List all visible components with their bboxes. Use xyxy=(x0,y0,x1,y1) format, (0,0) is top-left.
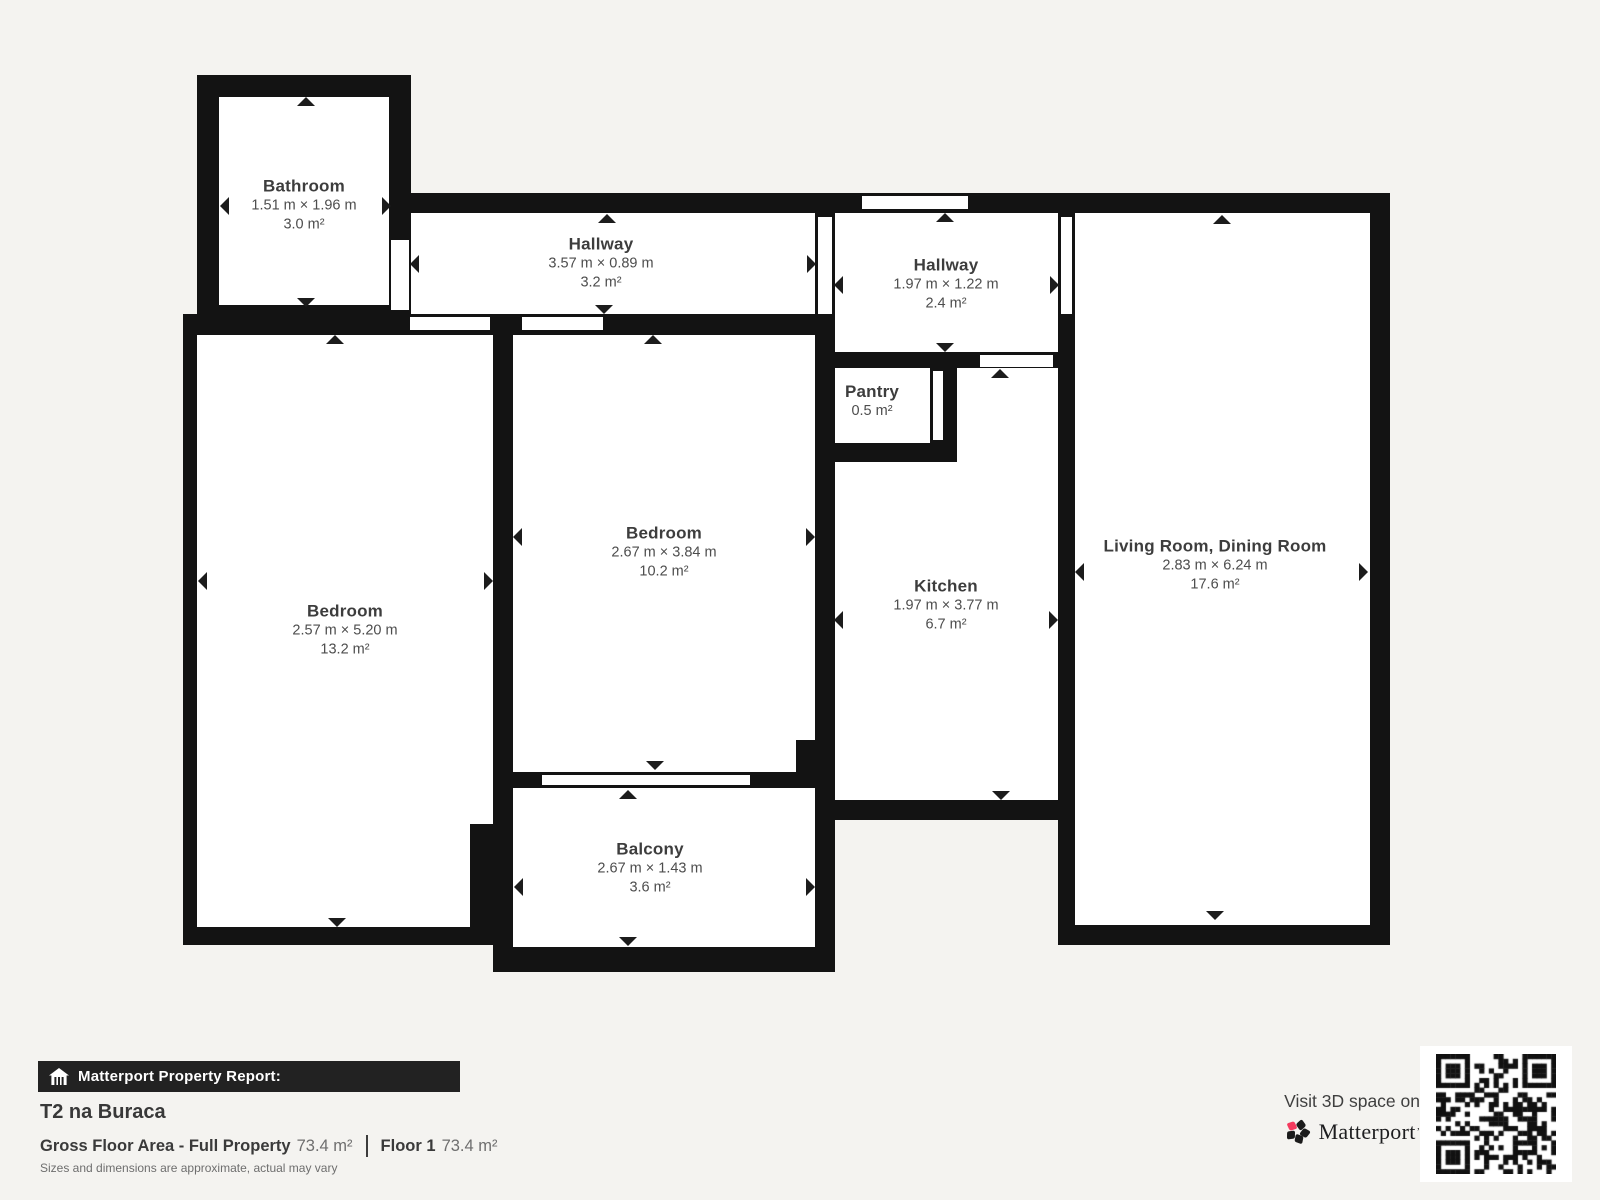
report-bar: Matterport Property Report: xyxy=(38,1061,460,1092)
room-area: 3.0 m² xyxy=(251,216,356,235)
room-area: 10.2 m² xyxy=(611,563,716,582)
room-name: Hallway xyxy=(893,255,998,276)
room-name: Living Room, Dining Room xyxy=(1104,536,1327,557)
wall-segment xyxy=(493,947,835,972)
dimension-arrow-down xyxy=(619,937,637,946)
matterport-wordmark: Matterport xyxy=(1319,1119,1416,1145)
room-name: Pantry xyxy=(845,381,899,402)
floor-value: 73.4 m² xyxy=(442,1137,498,1156)
floor-label: Floor 1 xyxy=(381,1137,436,1156)
matterport-pinwheel-icon xyxy=(1285,1119,1311,1145)
dimension-arrow-up xyxy=(598,214,616,223)
floor-plan: Bathroom 1.51 m × 1.96 m 3.0 m² Hallway … xyxy=(0,0,1600,1200)
dimension-arrow-right xyxy=(1050,276,1059,294)
room-dimensions: 3.57 m × 0.89 m xyxy=(548,255,653,274)
dimension-arrow-down xyxy=(936,343,954,352)
dimension-arrow-down xyxy=(595,305,613,314)
window-opening xyxy=(862,196,968,209)
room-name: Balcony xyxy=(597,839,702,860)
matterport-promo: Visit 3D space on Matterport’ xyxy=(1240,1091,1420,1145)
room-name: Bedroom xyxy=(611,523,716,544)
door-opening xyxy=(522,317,603,330)
door-opening xyxy=(933,371,943,440)
wall-segment xyxy=(815,443,957,462)
room-label-hallway-top: Hallway 3.57 m × 0.89 m 3.2 m² xyxy=(548,234,653,293)
room-name: Bathroom xyxy=(251,176,356,197)
property-name: T2 na Buraca xyxy=(40,1101,166,1124)
room-area: 3.6 m² xyxy=(597,879,702,898)
door-opening xyxy=(410,317,490,330)
wall-segment xyxy=(796,740,815,772)
dimension-arrow-left xyxy=(834,611,843,629)
room-dimensions: 2.67 m × 3.84 m xyxy=(611,544,716,563)
house-icon xyxy=(49,1068,69,1085)
qr-code xyxy=(1420,1046,1572,1182)
dimension-arrow-left xyxy=(198,572,207,590)
door-opening xyxy=(391,240,409,310)
room-label-bedroom-middle: Bedroom 2.67 m × 3.84 m 10.2 m² xyxy=(611,523,716,582)
wall-segment xyxy=(197,75,411,97)
dimension-arrow-left xyxy=(1075,563,1084,581)
dimension-arrow-right xyxy=(1049,611,1058,629)
dimension-arrow-left xyxy=(514,878,523,896)
room-area: 2.4 m² xyxy=(893,295,998,314)
dimension-arrow-down xyxy=(992,791,1010,800)
room-label-living-room: Living Room, Dining Room 2.83 m × 6.24 m… xyxy=(1104,536,1327,595)
door-opening xyxy=(818,217,832,314)
wall-segment xyxy=(183,314,197,945)
room-label-kitchen: Kitchen 1.97 m × 3.77 m 6.7 m² xyxy=(893,576,998,635)
dimension-arrow-up xyxy=(619,790,637,799)
dimension-arrow-right xyxy=(806,528,815,546)
separator-line xyxy=(366,1135,368,1157)
gfa-value: 73.4 m² xyxy=(297,1137,353,1156)
dimension-arrow-right xyxy=(807,255,816,273)
wall-segment xyxy=(815,800,1058,820)
gfa-label: Gross Floor Area - Full Property xyxy=(40,1137,291,1156)
wall-segment xyxy=(183,927,488,945)
room-dimensions: 1.97 m × 3.77 m xyxy=(893,597,998,616)
room-label-bedroom-left: Bedroom 2.57 m × 5.20 m 13.2 m² xyxy=(292,601,397,660)
room-area: 3.2 m² xyxy=(548,274,653,293)
dimension-arrow-down xyxy=(1206,911,1224,920)
room-dimensions: 2.57 m × 5.20 m xyxy=(292,622,397,641)
dimension-arrow-left xyxy=(834,276,843,294)
wall-segment xyxy=(470,824,493,945)
dimension-arrow-left xyxy=(220,197,229,215)
matterport-brand: Matterport’ xyxy=(1285,1119,1420,1145)
floor-area-summary: Gross Floor Area - Full Property 73.4 m²… xyxy=(40,1135,498,1157)
wall-segment xyxy=(1058,925,1390,945)
window-opening xyxy=(542,775,750,785)
room-area: 0.5 m² xyxy=(845,402,899,421)
wall-segment xyxy=(197,75,219,315)
dimension-arrow-right xyxy=(382,197,391,215)
dimension-arrow-up xyxy=(297,97,315,106)
room-name: Kitchen xyxy=(893,576,998,597)
window-opening xyxy=(980,355,1053,367)
room-label-balcony: Balcony 2.67 m × 1.43 m 3.6 m² xyxy=(597,839,702,898)
dimension-arrow-right xyxy=(806,878,815,896)
dimension-arrow-down xyxy=(328,918,346,927)
door-opening xyxy=(1061,217,1072,314)
dimension-arrow-up xyxy=(326,335,344,344)
qr-code-icon xyxy=(1436,1054,1556,1174)
dimension-arrow-up xyxy=(644,335,662,344)
room-label-hallway-small: Hallway 1.97 m × 1.22 m 2.4 m² xyxy=(893,255,998,314)
dimension-arrow-down xyxy=(646,761,664,770)
room-dimensions: 1.51 m × 1.96 m xyxy=(251,197,356,216)
dimension-arrow-right xyxy=(484,572,493,590)
room-name: Hallway xyxy=(548,234,653,255)
room-label-bathroom: Bathroom 1.51 m × 1.96 m 3.0 m² xyxy=(251,176,356,235)
room-label-pantry: Pantry 0.5 m² xyxy=(845,381,899,421)
room-name: Bedroom xyxy=(292,601,397,622)
dimension-arrow-left xyxy=(513,528,522,546)
room-dimensions: 2.67 m × 1.43 m xyxy=(597,860,702,879)
dimension-arrow-up xyxy=(991,369,1009,378)
dimension-arrow-up xyxy=(936,213,954,222)
room-dimensions: 2.83 m × 6.24 m xyxy=(1104,557,1327,576)
visit-3d-text: Visit 3D space on xyxy=(1284,1091,1420,1112)
report-bar-label: Matterport Property Report: xyxy=(78,1068,281,1085)
wall-segment xyxy=(1370,193,1390,945)
dimension-arrow-up xyxy=(1213,215,1231,224)
dimension-arrow-left xyxy=(410,255,419,273)
room-area: 13.2 m² xyxy=(292,641,397,660)
disclaimer-text: Sizes and dimensions are approximate, ac… xyxy=(40,1161,337,1175)
wall-segment xyxy=(493,314,513,972)
dimension-arrow-down xyxy=(297,298,315,307)
room-dimensions: 1.97 m × 1.22 m xyxy=(893,276,998,295)
dimension-arrow-right xyxy=(1359,563,1368,581)
room-area: 17.6 m² xyxy=(1104,576,1327,595)
room-area: 6.7 m² xyxy=(893,616,998,635)
wall-segment xyxy=(1058,213,1075,945)
